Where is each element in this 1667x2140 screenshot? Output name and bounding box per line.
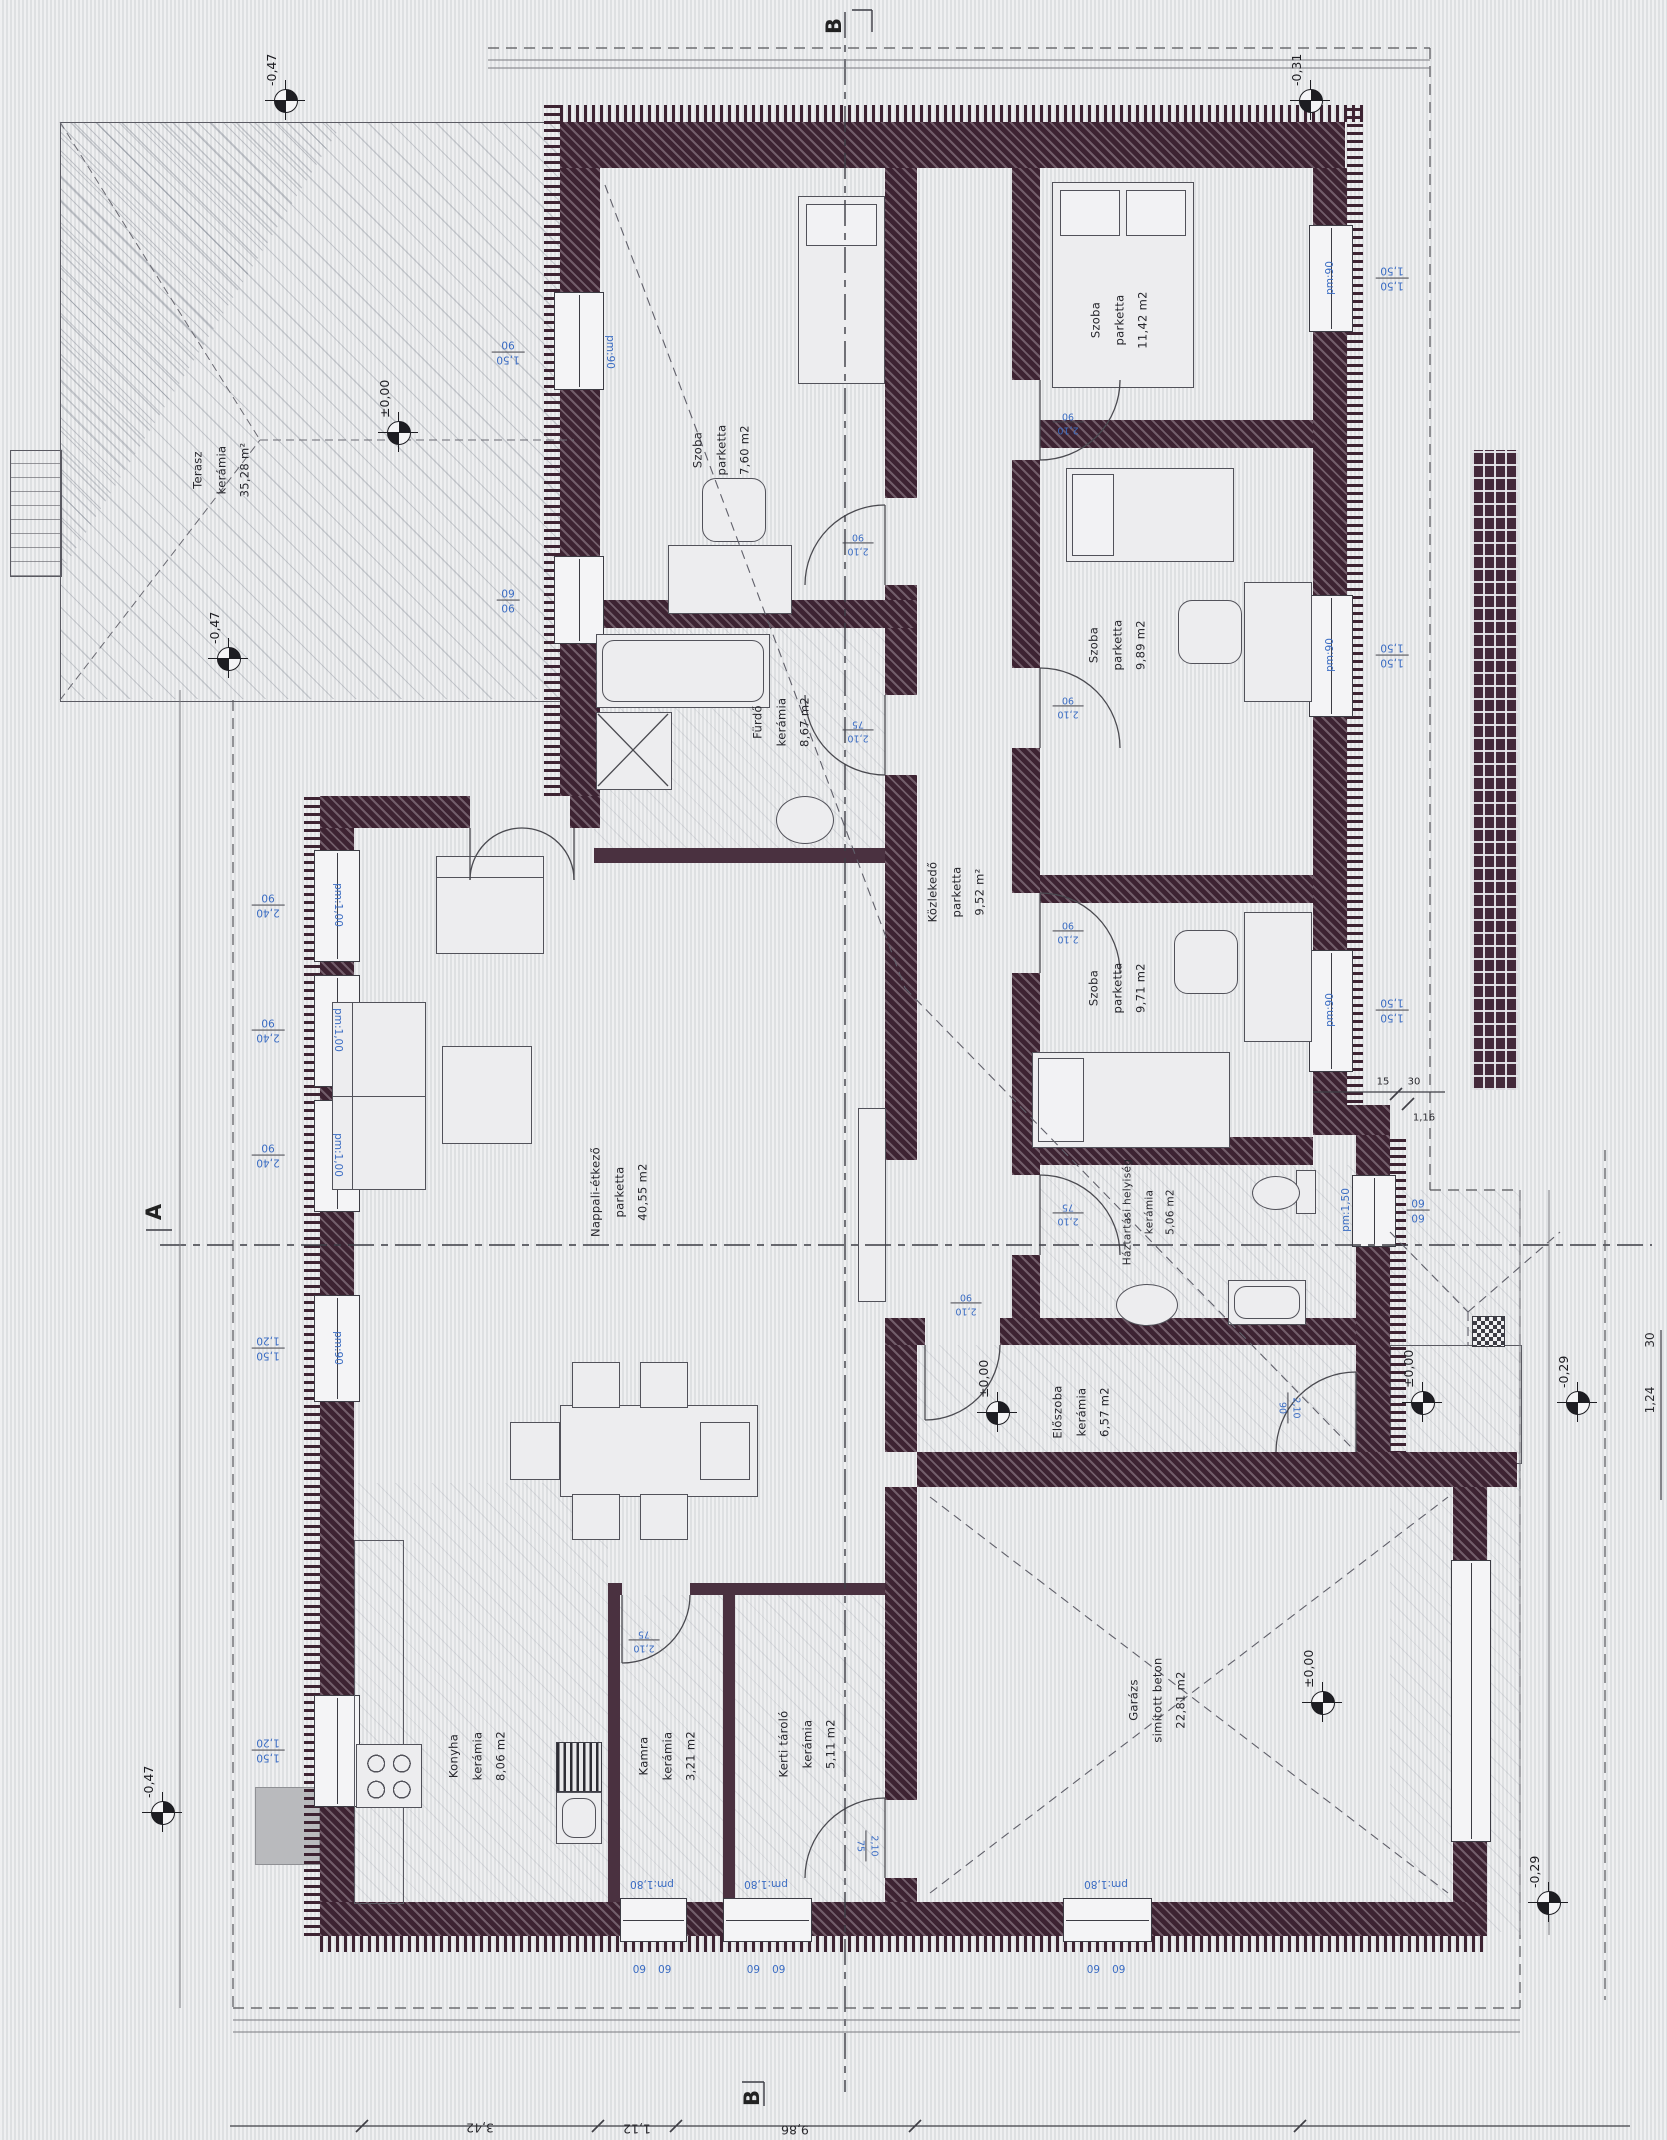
floor-plan-sheet: Szoba parketta 7,60 m2 Szoba parketta 11… — [0, 0, 1667, 2140]
room-label-szoba-989: Szoba parketta 9,89 m2 — [1083, 620, 1154, 671]
step-dim: 15 — [1377, 1077, 1390, 1088]
door-dim: 2,1090 — [842, 531, 873, 556]
level-icon — [1299, 89, 1323, 113]
room-label-haztartasi: Háztartási helyiség kerámia 5,06 m2 — [1118, 1159, 1183, 1265]
chain-dim: 1,24 — [1643, 1387, 1657, 1414]
window-dim: 6060 — [1406, 1196, 1429, 1223]
step-dim: 1,16 — [1413, 1113, 1435, 1124]
room-label-szoba-760: Szoba parketta 7,60 m2 — [687, 425, 758, 476]
parapet-label: pm:90 — [1324, 261, 1336, 295]
door-dim: 2,1075 — [628, 1628, 659, 1653]
parapet-label: pm:1,80 — [630, 1878, 674, 1890]
room-label-szoba-971: Szoba parketta 9,71 m2 — [1083, 963, 1154, 1014]
section-marker-a-left: A — [142, 1204, 166, 1220]
level-icon — [1311, 1691, 1335, 1715]
door-dim: 2,1075 — [854, 1830, 879, 1861]
parapet-label: pm:1,00 — [332, 883, 344, 927]
level-icon — [274, 89, 298, 113]
window-dim: 6060 — [1087, 1962, 1126, 1974]
level-icon — [387, 421, 411, 445]
window-dim: 9060 — [496, 586, 519, 613]
door-dim: 2,1090 — [1276, 1392, 1301, 1423]
room-label-szoba-1142: Szoba parketta 11,42 m2 — [1085, 291, 1156, 349]
step-dim: 30 — [1408, 1077, 1421, 1088]
window-dim: 6060 — [747, 1962, 786, 1974]
door-dim: 2,1075 — [1052, 1201, 1083, 1226]
section-marker-b-bottom: B — [740, 2090, 764, 2106]
parapet-label: pm:1,00 — [332, 1008, 344, 1052]
room-label-garazs: Garázs simított beton 22,81 m2 — [1123, 1657, 1194, 1742]
room-label-kamra: Kamra kerámia 3,21 m2 — [633, 1731, 704, 1781]
level-icon — [986, 1401, 1010, 1425]
door-dim: 2,1090 — [1052, 919, 1083, 944]
window-dim: 1,501,50 — [1375, 264, 1408, 291]
room-label-furdo: Fürdő kerámia 8,67 m2 — [747, 697, 818, 747]
chain-dim: 9,86 — [781, 2123, 809, 2138]
window-dim: 1,501,20 — [251, 1334, 284, 1361]
parapet-label: pm:90 — [1324, 638, 1336, 672]
level-icon — [1566, 1391, 1590, 1415]
parapet-label: pm:90 — [332, 1331, 344, 1365]
linework-layer — [0, 0, 1667, 2140]
door-dim: 2,1090 — [950, 1291, 981, 1316]
window-dim: 1,501,50 — [1375, 996, 1408, 1023]
window-dim: 1,501,50 — [1375, 641, 1408, 668]
room-label-konyha: Konyha kerámia 8,06 m2 — [443, 1731, 514, 1781]
room-label-kozlekedo: Közlekedő parketta 9,52 m² — [922, 862, 993, 923]
room-label-eloszoba: Előszoba kerámia 6,57 m2 — [1047, 1385, 1118, 1438]
level-icon — [217, 647, 241, 671]
parapet-label: pm:1,80 — [744, 1878, 788, 1890]
parapet-label: pm:90 — [1324, 993, 1336, 1027]
window-dim: 2,4090 — [251, 891, 284, 918]
window-dim: 1,501,20 — [251, 1736, 284, 1763]
section-marker-b-top: B — [822, 18, 846, 34]
level-icon — [1537, 1891, 1561, 1915]
parapet-label: pm:90 — [604, 335, 616, 369]
parapet-label: pm:1,80 — [1084, 1878, 1128, 1890]
door-dim: 2,1090 — [1052, 410, 1083, 435]
door-dim: 2,1075 — [842, 718, 873, 743]
window-dim: 1,5090 — [491, 338, 524, 365]
level-icon — [1411, 1391, 1435, 1415]
parapet-label: pm:1,00 — [332, 1133, 344, 1177]
room-label-nappali: Nappali-étkező parketta 40,55 m2 — [585, 1147, 656, 1237]
window-dim: 2,4090 — [251, 1141, 284, 1168]
room-label-kerti-tarolo: Kerti tároló kerámia 5,11 m2 — [773, 1710, 844, 1777]
chain-dim: 30 — [1643, 1332, 1657, 1347]
chain-dim: 1,12 — [623, 2122, 651, 2137]
window-dim: 6060 — [633, 1962, 672, 1974]
chain-dim: 3,42 — [466, 2121, 494, 2136]
window-dim: 2,4090 — [251, 1016, 284, 1043]
door-dim: 2,1090 — [1052, 694, 1083, 719]
level-icon — [151, 1801, 175, 1825]
parapet-label: pm:1,50 — [1340, 1188, 1352, 1232]
room-label-terasz: Terasz kerámia 35,28 m² — [187, 443, 258, 498]
